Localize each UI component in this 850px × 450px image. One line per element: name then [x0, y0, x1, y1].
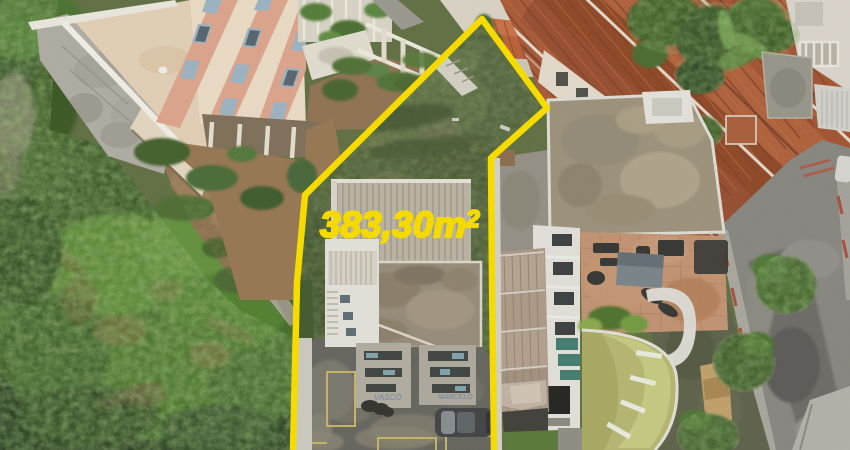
svg-text:383,30m2: 383,30m2	[320, 204, 480, 245]
